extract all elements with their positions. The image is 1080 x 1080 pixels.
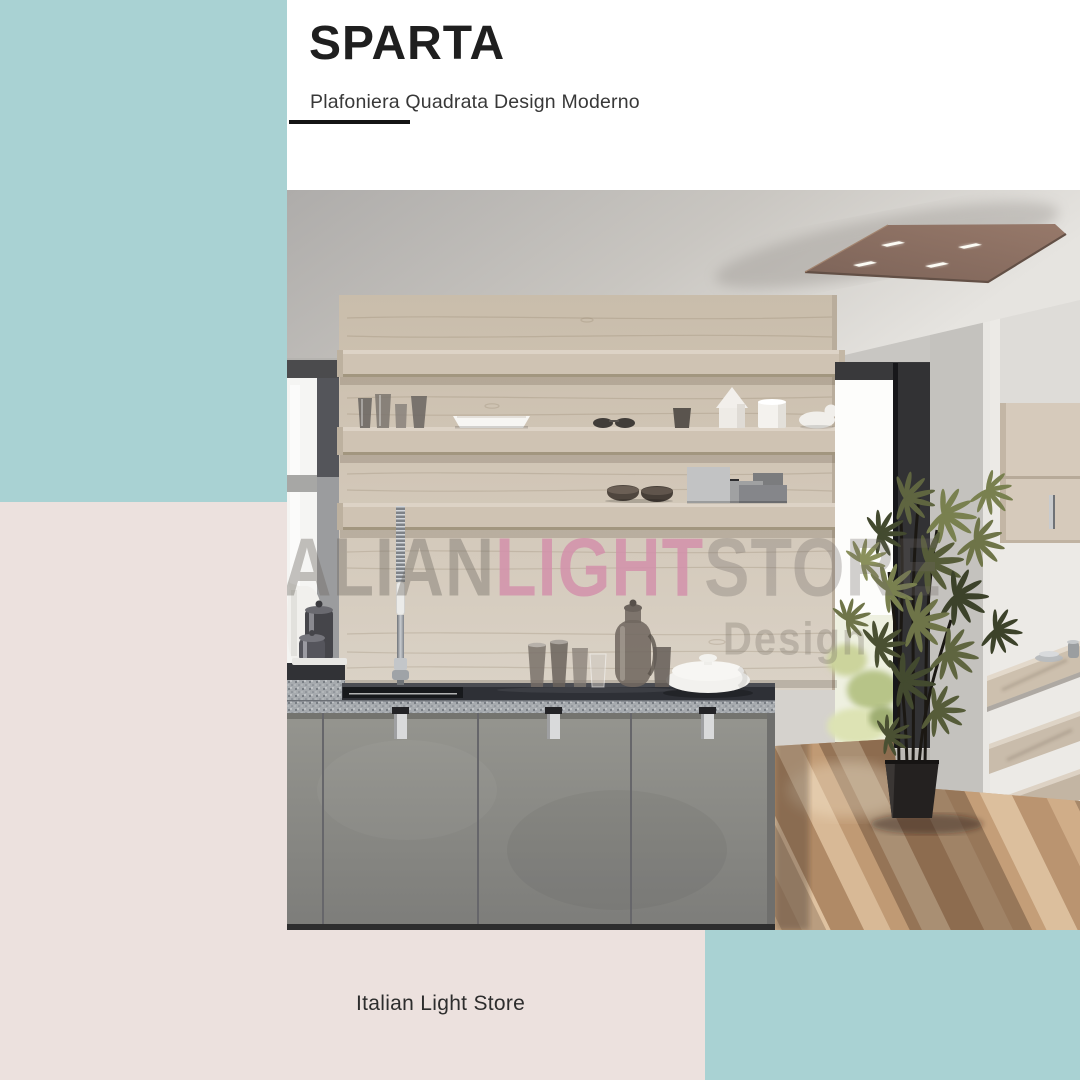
wall-shelves: [337, 350, 850, 538]
page-title: SPARTA: [309, 16, 505, 71]
white-dish: [453, 416, 530, 429]
shelf-top: [337, 350, 845, 385]
watermark-part-2: LIGHT: [495, 521, 704, 614]
watermark-part-1: ITALIAN: [287, 521, 495, 614]
sink: [343, 687, 463, 698]
page-subtitle: Plafoniera Quadrata Design Moderno: [310, 91, 640, 114]
title-underline: [289, 120, 410, 124]
right-wall-cabinet: [1000, 403, 1080, 543]
store-name: Italian Light Store: [356, 992, 525, 1016]
promo-card: SPARTA Plafoniera Quadrata Design Modern…: [0, 0, 1080, 1080]
watermark-text: ITALIANLIGHTSTORE: [287, 520, 942, 615]
decor-block-blue-top-left: [0, 0, 287, 502]
kitchen-island: [287, 663, 837, 930]
kitchen-photo: ITALIANLIGHTSTORE Design: [287, 190, 1080, 930]
decor-block-blue-bottom-right: [705, 930, 1080, 1080]
white-cylinder-vase: [758, 399, 786, 428]
plant-pot: [885, 760, 939, 818]
dark-tumbler: [673, 408, 691, 428]
watermark-part-3: STORE: [704, 521, 942, 614]
cabinet-doors: [287, 713, 775, 930]
watermark-tagline: Design: [723, 614, 868, 666]
shelf-middle: [337, 427, 850, 463]
right-tumbler: [653, 647, 671, 687]
